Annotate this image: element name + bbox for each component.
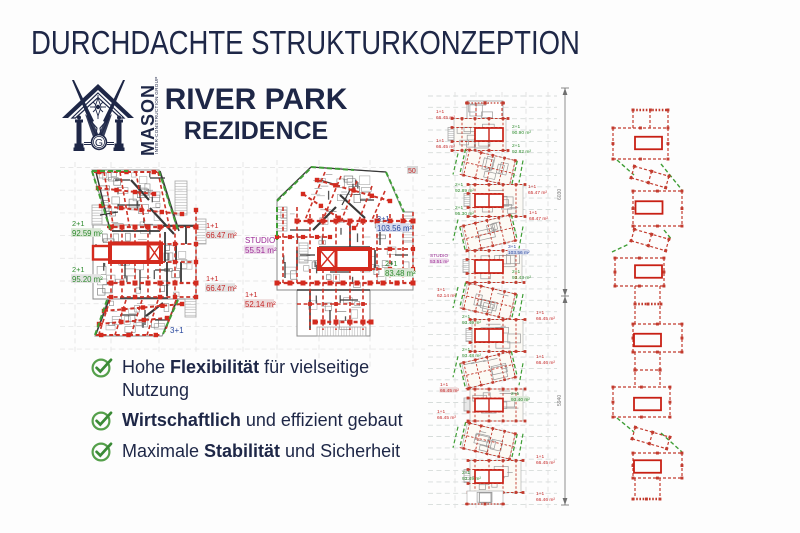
svg-text:2+1: 2+1 [462, 314, 470, 320]
svg-text:2+1: 2+1 [512, 143, 520, 149]
svg-text:1+1: 1+1 [436, 138, 444, 144]
svg-text:1+1: 1+1 [206, 274, 219, 283]
svg-text:103.56 m²: 103.56 m² [508, 250, 530, 256]
svg-text:95.30 m²: 95.30 m² [455, 211, 474, 217]
svg-text:2+1: 2+1 [385, 259, 398, 268]
svg-text:1+1: 1+1 [437, 409, 445, 415]
svg-text:90.90 m²: 90.90 m² [512, 130, 531, 136]
svg-text:93.40 m²: 93.40 m² [511, 397, 530, 403]
svg-text:1+1: 1+1 [536, 354, 544, 360]
svg-text:1+1: 1+1 [206, 221, 219, 230]
svg-text:103.56 m²: 103.56 m² [377, 224, 413, 233]
svg-text:2+1: 2+1 [72, 219, 85, 228]
svg-text:66.45 m²: 66.45 m² [436, 144, 455, 150]
svg-text:STUDIO: STUDIO [430, 253, 448, 259]
svg-text:2+1: 2+1 [455, 205, 463, 211]
svg-text:2+1: 2+1 [72, 265, 85, 274]
svg-text:55.51 m²: 55.51 m² [245, 246, 277, 255]
svg-text:5940: 5940 [557, 395, 563, 406]
svg-text:92.59 m²: 92.59 m² [72, 229, 103, 238]
svg-text:93.49 m²: 93.49 m² [462, 320, 481, 326]
svg-text:3+1: 3+1 [377, 214, 390, 223]
svg-text:STUDIO: STUDIO [245, 236, 275, 245]
svg-text:6030: 6030 [557, 189, 563, 200]
svg-text:66.45 m²: 66.45 m² [436, 115, 455, 121]
svg-text:1+1: 1+1 [440, 382, 448, 388]
svg-text:3+1: 3+1 [508, 244, 516, 250]
svg-text:1+1: 1+1 [528, 184, 536, 190]
svg-text:53.51 m²: 53.51 m² [430, 259, 449, 265]
svg-text:1+1: 1+1 [536, 491, 544, 497]
svg-text:52.14 m²: 52.14 m² [245, 300, 276, 309]
svg-text:95.20 m²: 95.20 m² [72, 275, 103, 284]
svg-text:1+1: 1+1 [437, 287, 445, 293]
svg-text:66.45 m²: 66.45 m² [437, 415, 456, 421]
svg-text:66.47 m²: 66.47 m² [206, 231, 237, 240]
svg-text:93.43 m²: 93.43 m² [512, 275, 531, 281]
svg-text:66.47 m²: 66.47 m² [206, 284, 237, 293]
svg-text:2+1: 2+1 [511, 391, 519, 397]
svg-text:2+1: 2+1 [512, 269, 520, 275]
svg-text:66.45 m²: 66.45 m² [440, 388, 459, 394]
svg-text:68.47 m²: 68.47 m² [529, 216, 548, 222]
svg-text:92.82 m²: 92.82 m² [512, 149, 531, 155]
svg-text:2+1: 2+1 [462, 470, 470, 476]
svg-text:62.14 m²: 62.14 m² [437, 293, 456, 299]
svg-text:93.49 m²: 93.49 m² [462, 476, 481, 482]
svg-text:1+1: 1+1 [536, 310, 544, 316]
svg-text:3+1: 3+1 [170, 326, 184, 335]
svg-text:2+1: 2+1 [462, 347, 470, 353]
svg-text:65.47 m²: 65.47 m² [528, 190, 547, 196]
svg-text:1+1: 1+1 [529, 210, 537, 216]
svg-text:50: 50 [408, 168, 416, 175]
svg-text:1+1: 1+1 [245, 290, 258, 299]
svg-text:2+1: 2+1 [455, 182, 463, 188]
svg-text:2+1: 2+1 [512, 124, 520, 130]
svg-text:92.89 m²: 92.89 m² [455, 188, 474, 194]
svg-text:1+1: 1+1 [436, 109, 444, 115]
svg-text:1+1: 1+1 [536, 454, 544, 460]
svg-text:83.48 m²: 83.48 m² [385, 269, 416, 278]
svg-text:93.48 m²: 93.48 m² [462, 353, 481, 359]
